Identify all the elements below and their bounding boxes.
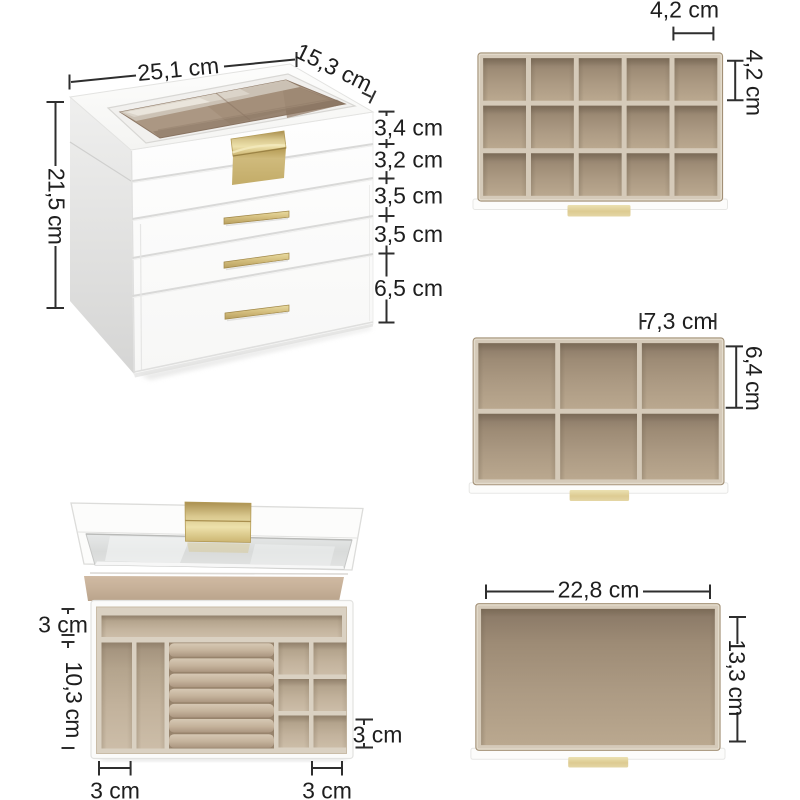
svg-text:3 cm: 3 cm xyxy=(38,612,88,638)
svg-text:3,2 cm: 3,2 cm xyxy=(374,147,443,173)
svg-text:22,8 cm: 22,8 cm xyxy=(558,577,640,603)
svg-text:21,5 cm: 21,5 cm xyxy=(44,168,70,244)
svg-text:3 cm: 3 cm xyxy=(302,778,352,800)
svg-text:3,5 cm: 3,5 cm xyxy=(374,183,443,209)
svg-text:3,4 cm: 3,4 cm xyxy=(374,115,443,141)
svg-text:6,4 cm: 6,4 cm xyxy=(741,346,767,410)
svg-text:7,3 cm: 7,3 cm xyxy=(643,308,712,334)
svg-text:13,3 cm: 13,3 cm xyxy=(724,639,750,715)
svg-text:4,2 cm: 4,2 cm xyxy=(650,0,719,23)
svg-text:10,3 cm: 10,3 cm xyxy=(61,661,87,737)
svg-text:3,5 cm: 3,5 cm xyxy=(374,221,443,247)
svg-text:6,5 cm: 6,5 cm xyxy=(374,275,443,301)
svg-text:3 cm: 3 cm xyxy=(90,778,140,800)
svg-text:3 cm: 3 cm xyxy=(353,722,403,748)
svg-text:4,2 cm: 4,2 cm xyxy=(742,49,768,115)
